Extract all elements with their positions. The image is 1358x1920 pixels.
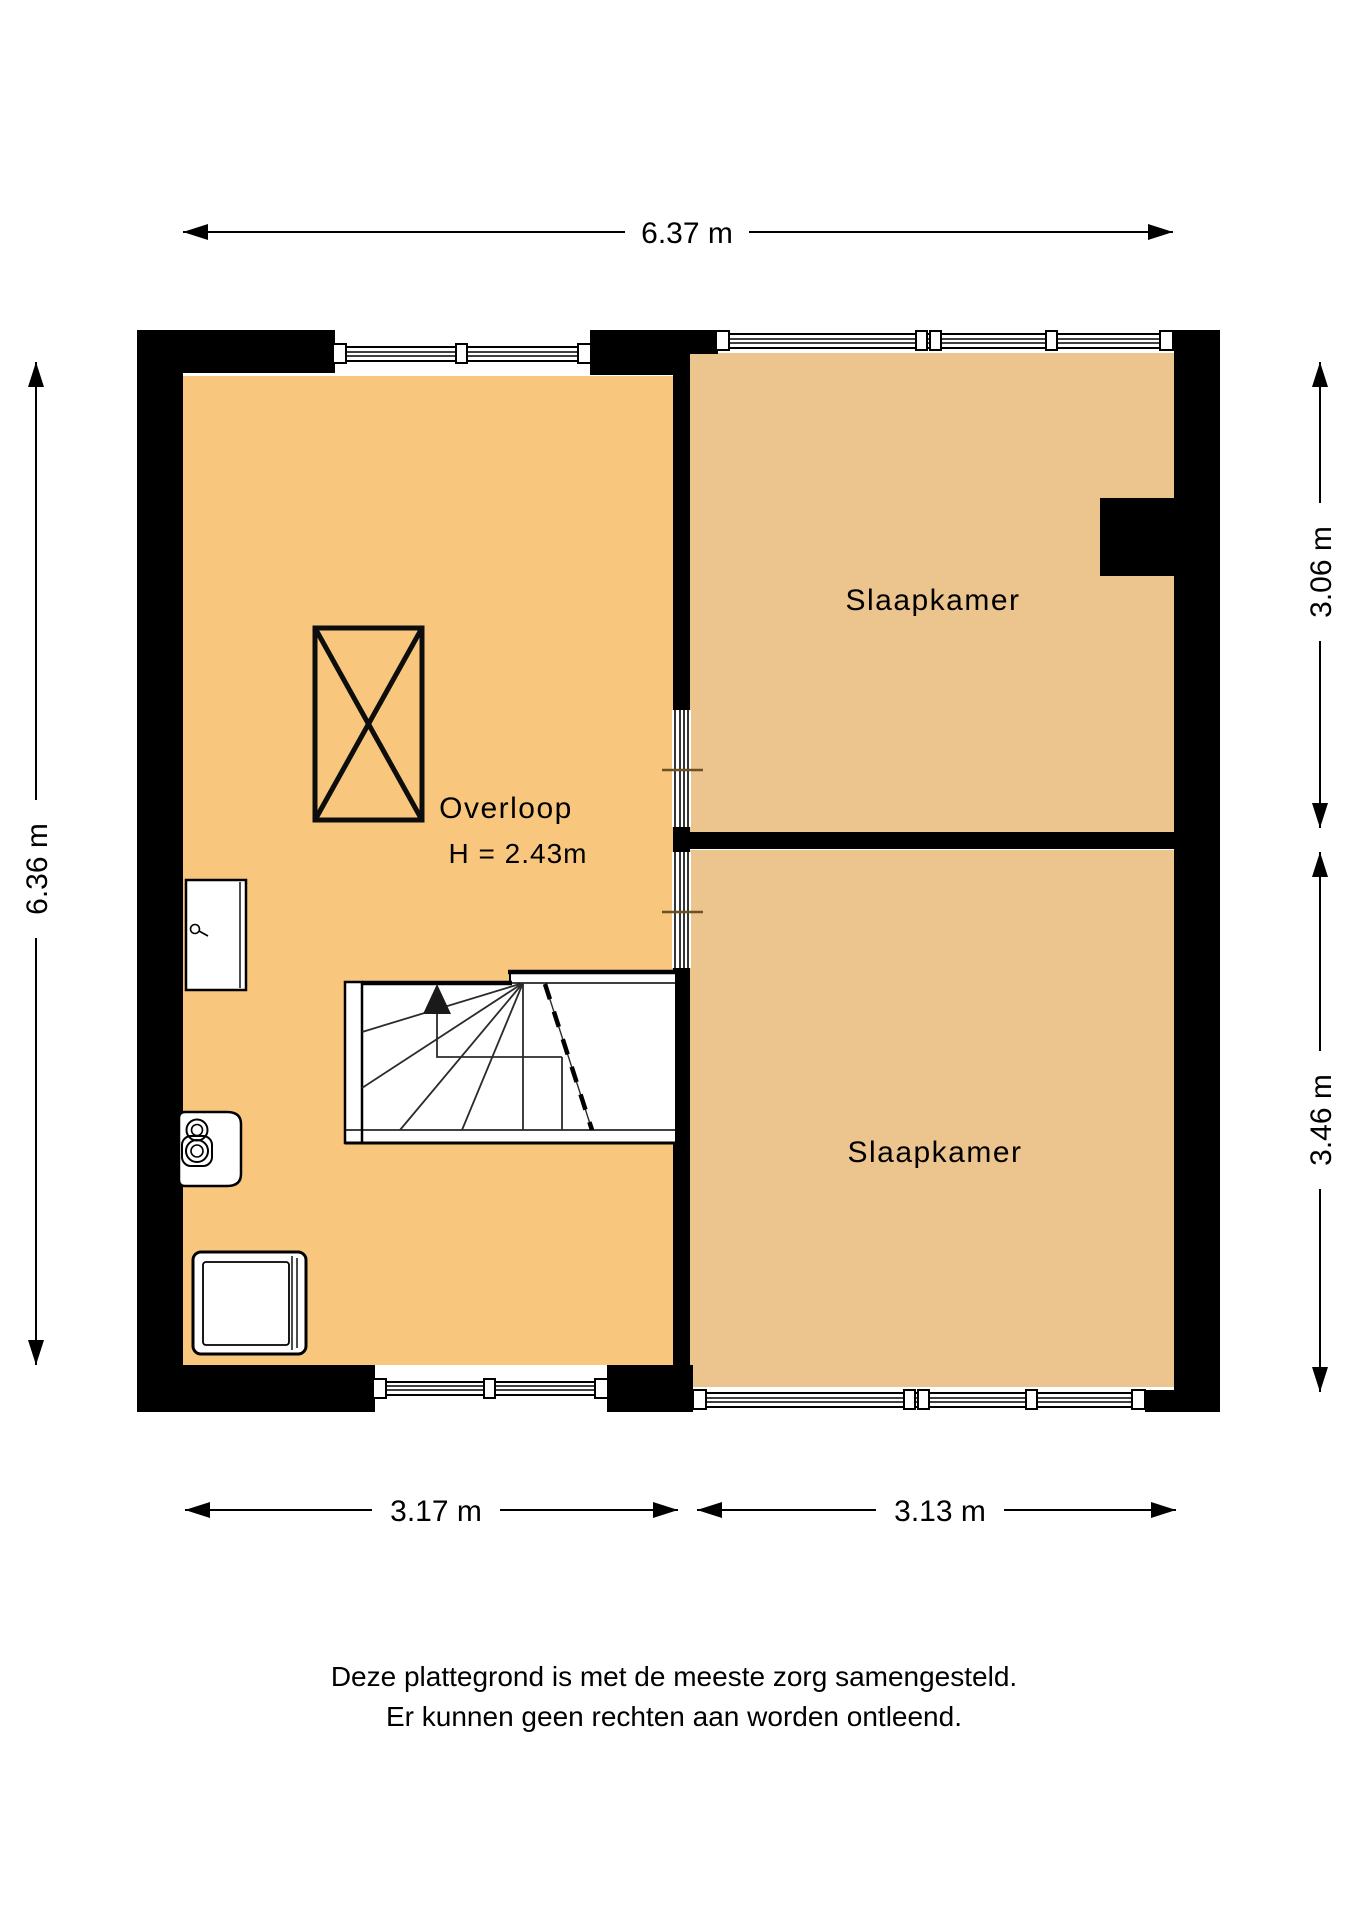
ventilation-unit [179, 1112, 241, 1186]
dim-text-bedroom-bottom-height: 3.46 m [1305, 1074, 1338, 1166]
disclaimer-line-2: Er kunnen geen rechten aan worden ontlee… [386, 1701, 962, 1732]
floor-plan-svg: Overloop H = 2.43m Slaapkamer Slaapkamer… [0, 0, 1358, 1920]
label-bedroom-top: Slaapkamer [845, 584, 1020, 617]
dim-text-bedroom-width: 3.13 m [894, 1495, 986, 1528]
staircase [345, 971, 675, 1143]
disclaimer-line-1: Deze plattegrond is met de meeste zorg s… [331, 1661, 1017, 1692]
boiler-cabinet [186, 880, 246, 990]
wall-bedroom-divider [690, 832, 1174, 849]
floor-plan-page: Overloop H = 2.43m Slaapkamer Slaapkamer… [0, 0, 1358, 1920]
wall-bottom-middle [607, 1365, 693, 1412]
label-ceiling-height: H = 2.43m [449, 838, 588, 869]
wall-chimney [1100, 498, 1176, 576]
washing-machine [193, 1252, 306, 1354]
stair-left-stringer [345, 982, 362, 1143]
wall-middle-lower [673, 968, 690, 1412]
wall-right [1174, 330, 1220, 1412]
room-overloop-floor [183, 376, 673, 1365]
window-icon-top-right [716, 331, 1173, 350]
dim-text-overloop-width: 3.17 m [390, 1495, 482, 1528]
shaft-cross-icon [315, 628, 422, 820]
wall-middle-upper [673, 373, 690, 710]
dim-text-total-width: 6.37 m [641, 217, 733, 250]
wall-bottom-right-foot [1145, 1390, 1174, 1412]
dim-text-left-height: 6.36 m [21, 823, 54, 915]
window-icon-top-left [333, 344, 591, 363]
wall-top-left [137, 330, 335, 373]
label-overloop: Overloop [439, 792, 573, 825]
window-icon-bottom-left [373, 1379, 608, 1398]
wall-bottom-left [137, 1365, 375, 1412]
label-bedroom-bottom: Slaapkamer [847, 1136, 1022, 1169]
wall-left [137, 330, 183, 1412]
dim-text-bedroom-top-height: 3.06 m [1305, 526, 1338, 618]
wall-top-middle-b [590, 330, 690, 375]
room-bedroom-bottom-floor [690, 850, 1174, 1387]
wall-middle-junction [673, 827, 690, 852]
window-icon-bottom-right [693, 1390, 1145, 1409]
